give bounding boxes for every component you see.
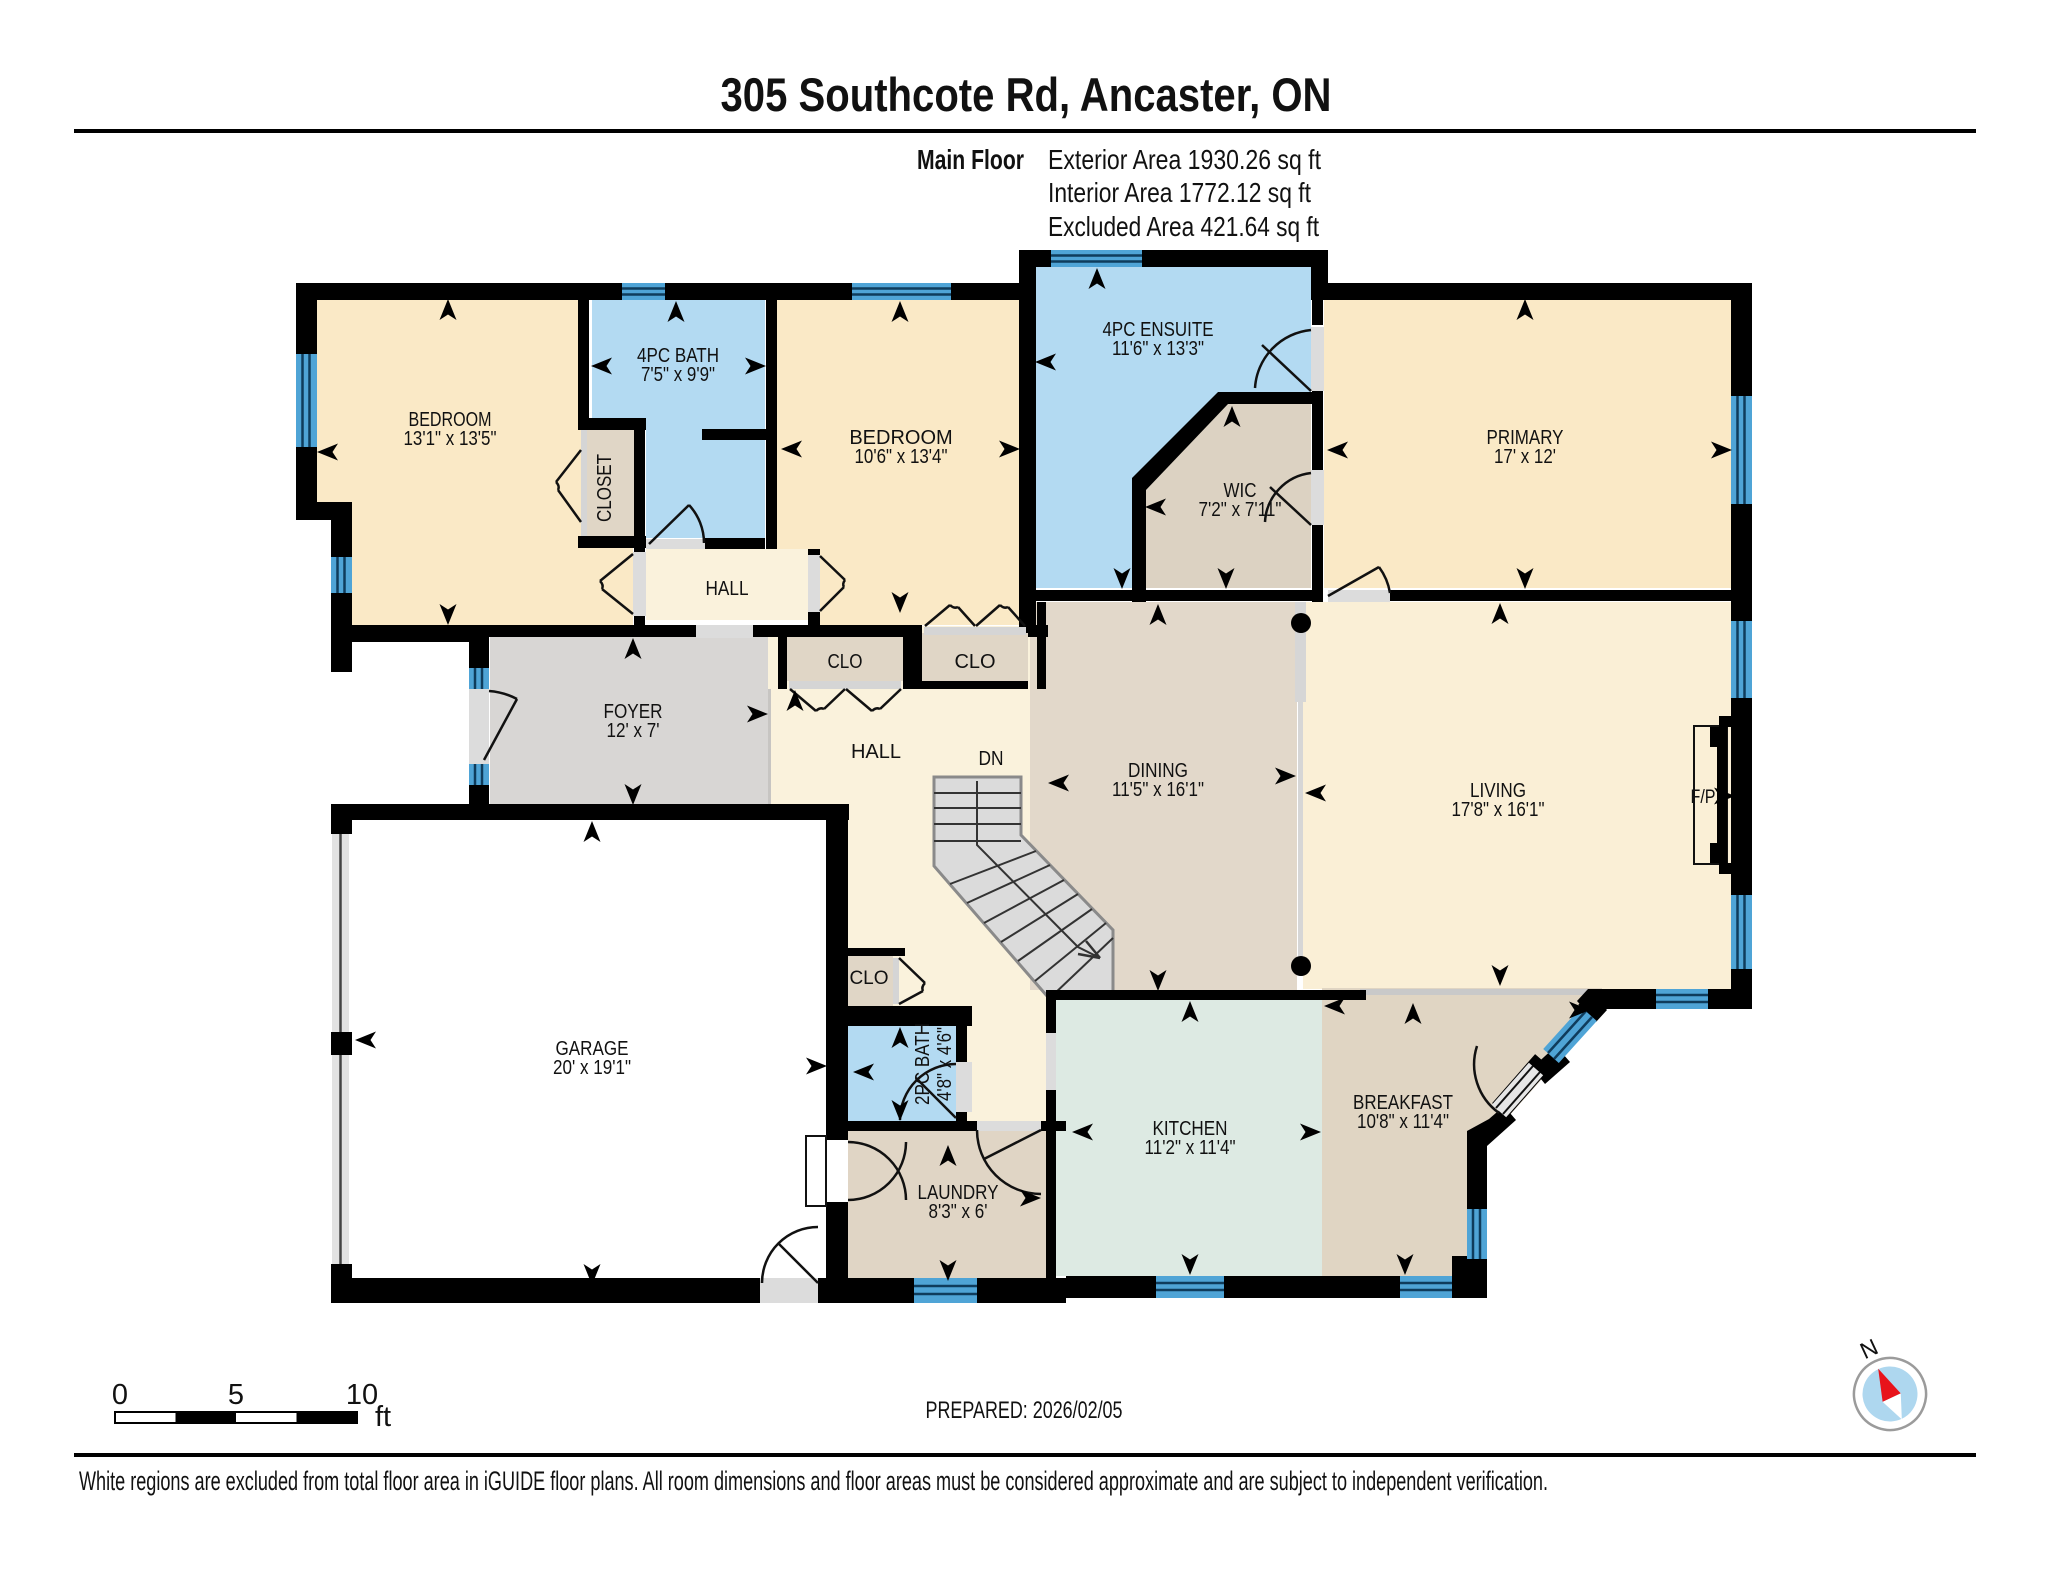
svg-text:8'3" x 6': 8'3" x 6' [929,1201,988,1223]
svg-text:CLOSET: CLOSET [594,454,616,522]
svg-text:2PC BATH: 2PC BATH [912,1023,934,1105]
svg-text:11'2" x 11'4": 11'2" x 11'4" [1145,1137,1236,1159]
svg-text:12' x 7': 12' x 7' [607,720,660,742]
svg-text:4'8" x 4'6": 4'8" x 4'6" [934,1027,956,1101]
svg-text:10: 10 [346,1379,378,1411]
svg-text:11'6" x 13'3": 11'6" x 13'3" [1112,338,1204,360]
svg-text:PREPARED: 2026/02/05: PREPARED: 2026/02/05 [926,1397,1123,1424]
svg-text:ft: ft [375,1401,391,1433]
svg-text:CLO: CLO [849,968,888,989]
svg-text:Exterior Area 1930.26 sq ft: Exterior Area 1930.26 sq ft [1048,144,1321,175]
svg-text:F/P: F/P [1691,787,1716,808]
svg-text:Interior Area 1772.12 sq ft: Interior Area 1772.12 sq ft [1048,177,1311,208]
svg-text:Excluded Area 421.64 sq ft: Excluded Area 421.64 sq ft [1048,211,1319,242]
svg-text:17'8" x 16'1": 17'8" x 16'1" [1452,799,1545,821]
svg-text:7'5" x 9'9": 7'5" x 9'9" [641,364,715,386]
svg-text:13'1" x 13'5": 13'1" x 13'5" [404,428,497,450]
svg-text:5: 5 [228,1379,244,1411]
svg-text:CLO: CLO [954,651,995,673]
svg-text:DN: DN [979,748,1004,770]
svg-text:11'5" x 16'1": 11'5" x 16'1" [1112,779,1204,801]
svg-text:305 Southcote Rd, Ancaster, ON: 305 Southcote Rd, Ancaster, ON [721,68,1332,121]
svg-text:10'8" x 11'4": 10'8" x 11'4" [1357,1111,1449,1133]
svg-text:White regions are excluded fro: White regions are excluded from total fl… [79,1466,1548,1496]
svg-text:17' x 12': 17' x 12' [1494,446,1556,468]
svg-text:0: 0 [112,1379,128,1411]
svg-text:HALL: HALL [851,741,901,763]
svg-text:Main Floor: Main Floor [917,144,1024,175]
svg-text:HALL: HALL [706,578,749,600]
svg-text:10'6" x 13'4": 10'6" x 13'4" [855,446,948,468]
svg-text:20' x 19'1": 20' x 19'1" [553,1057,631,1079]
svg-text:CLO: CLO [828,651,863,673]
svg-text:7'2" x 7'11": 7'2" x 7'11" [1199,499,1282,521]
